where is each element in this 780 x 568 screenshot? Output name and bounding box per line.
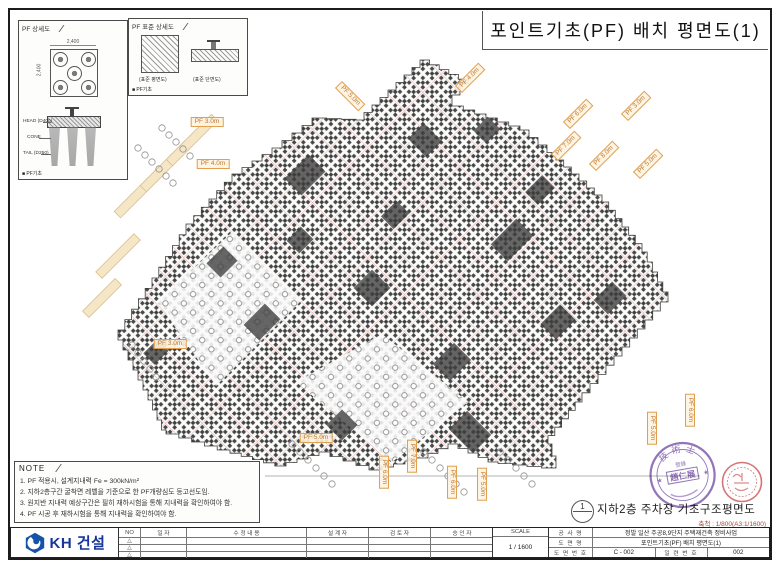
pile-circle-icon <box>81 52 96 67</box>
pile-figure <box>85 127 96 166</box>
revision-row: △ <box>119 537 492 544</box>
label-tail: TAIL (D250) <box>23 151 49 156</box>
revision-row: △ <box>119 544 492 551</box>
serial-number-label: 일 련 번 호 <box>656 548 708 557</box>
legend-pf-detail: PF 상세도 2,400 2,400 HEAD (D400) CONE TAIL… <box>18 20 128 180</box>
label-head: HEAD (D400) <box>23 119 52 124</box>
project-row: 공 사 명 정발 일산 주공8,9단지 주택재건축 정비사업 <box>549 528 769 537</box>
detail-bubble-number: 1 <box>572 502 593 511</box>
pile-circle-icon <box>67 66 82 81</box>
revision-cell <box>431 552 493 558</box>
note-lines: 1. PF 적용시, 설계지내력 Fe = 300kN/m²2. 지하2층구간 … <box>20 477 256 521</box>
legend-pf-detail-header: PF 상세도 <box>22 23 62 33</box>
revision-cell <box>307 552 369 558</box>
revision-cell: 일 자 <box>141 528 187 537</box>
revision-cell: NO <box>119 528 141 537</box>
revision-row: △ <box>119 551 492 558</box>
legend-tag: ■ PF기초 <box>22 170 42 177</box>
revision-cell: 승 인 자 <box>431 528 493 537</box>
scale-value: 1 / 1600 <box>493 537 548 557</box>
note-line: 3. 원지반 지내력 예상구간은 필히 재하시험을 통해 지내력을 확인하여야 … <box>20 499 256 510</box>
drawing-info-fields: 공 사 명 정발 일산 주공8,9단지 주택재건축 정비사업 도 면 명 포인트… <box>549 528 769 557</box>
serial-number: 002 <box>708 548 770 557</box>
company-name: KH 건설 <box>50 532 106 553</box>
column-stub <box>70 107 74 116</box>
revision-header-row: NO일 자수 정 내 용설 계 자검 토 자승 인 자 <box>119 528 492 537</box>
note-line: 1. PF 적용시, 설계지내력 Fe = 300kN/m² <box>20 477 256 488</box>
detail-bubble-divider <box>573 511 592 512</box>
standard-section-figure <box>191 49 239 62</box>
pile-circle-icon <box>81 80 96 95</box>
revision-cell: 검 토 자 <box>369 528 431 537</box>
sheet-title-cell: 포인트기초(PF) 배치 평면도(1) <box>482 11 768 50</box>
drawing-number: C - 002 <box>593 548 656 557</box>
legend-tag: ■ PF기초 <box>132 86 152 93</box>
label-cone: CONE <box>27 135 41 140</box>
drawing-number-row: 도 면 번 호 C - 002 일 련 번 호 002 <box>549 547 769 557</box>
drawing-number-label: 도 면 번 호 <box>549 548 593 557</box>
note-header: NOTE <box>19 464 59 473</box>
note-line: 2. 지하2층구간 굴착면 레벨을 기준으로 한 PF개량심도 등고선도임. <box>20 488 256 499</box>
scanned-drawing-sheet: { "sheet": { "title": "포인트기초(PF) 배치 평면도(… <box>0 0 780 568</box>
revision-cell <box>369 552 431 558</box>
project-name: 정발 일산 주공8,9단지 주택재건축 정비사업 <box>593 528 769 537</box>
revision-cell <box>141 552 187 558</box>
revision-table: NO일 자수 정 내 용설 계 자검 토 자승 인 자△△△ <box>119 528 493 557</box>
pile-circle-icon <box>53 80 68 95</box>
dim-top: 2,400 <box>50 39 96 46</box>
drawing-name-label: 도 면 명 <box>549 538 593 547</box>
detail-bubble: 1 <box>571 500 594 523</box>
legend-pf-standard: PF 표준 상세도 (표준 평면도) (표준 단면도) ■ PF기초 <box>128 18 248 96</box>
revision-cell: 설 계 자 <box>307 528 369 537</box>
dim-left: 2,400 <box>36 64 42 77</box>
kh-logo-icon <box>24 532 46 554</box>
column-stub <box>211 41 216 49</box>
title-block: KH 건설 NO일 자수 정 내 용설 계 자검 토 자승 인 자△△△ SCA… <box>10 527 770 558</box>
note-line: 4. PF 시공 후 재하시험을 통해 지내력을 확인하여야 함. <box>20 510 256 521</box>
standard-plan-figure <box>141 35 179 73</box>
drawing-name-row: 도 면 명 포인트기초(PF) 배치 평면도(1) <box>549 537 769 547</box>
pile-circle-icon <box>53 52 68 67</box>
project-label: 공 사 명 <box>549 528 593 537</box>
drawing-name: 포인트기초(PF) 배치 평면도(1) <box>593 538 769 547</box>
revision-cell: △ <box>119 552 141 558</box>
plan-footprint <box>100 48 692 488</box>
caption-standard-section: (표준 단면도) <box>193 76 221 83</box>
revision-cell <box>187 552 307 558</box>
caption-standard-plan: (표준 평면도) <box>139 76 167 83</box>
pile-figure <box>67 127 78 166</box>
scale-cell: SCALE 1 / 1600 <box>493 528 549 557</box>
pile-figure <box>49 127 60 166</box>
legend-pf-standard-header: PF 표준 상세도 <box>132 21 186 31</box>
scale-label: SCALE <box>493 528 548 537</box>
revision-cell: 수 정 내 용 <box>187 528 307 537</box>
drawing-caption: 지하2층 주차장 기초구조평면도 <box>597 501 755 517</box>
pf-plan-figure <box>50 49 98 97</box>
pile-cap-figure <box>47 116 101 128</box>
sheet-title: 포인트기초(PF) 배치 평면도(1) <box>490 17 761 43</box>
note-box: NOTE 1. PF 적용시, 설계지내력 Fe = 300kN/m²2. 지하… <box>14 461 260 523</box>
company-logo: KH 건설 <box>11 528 119 557</box>
